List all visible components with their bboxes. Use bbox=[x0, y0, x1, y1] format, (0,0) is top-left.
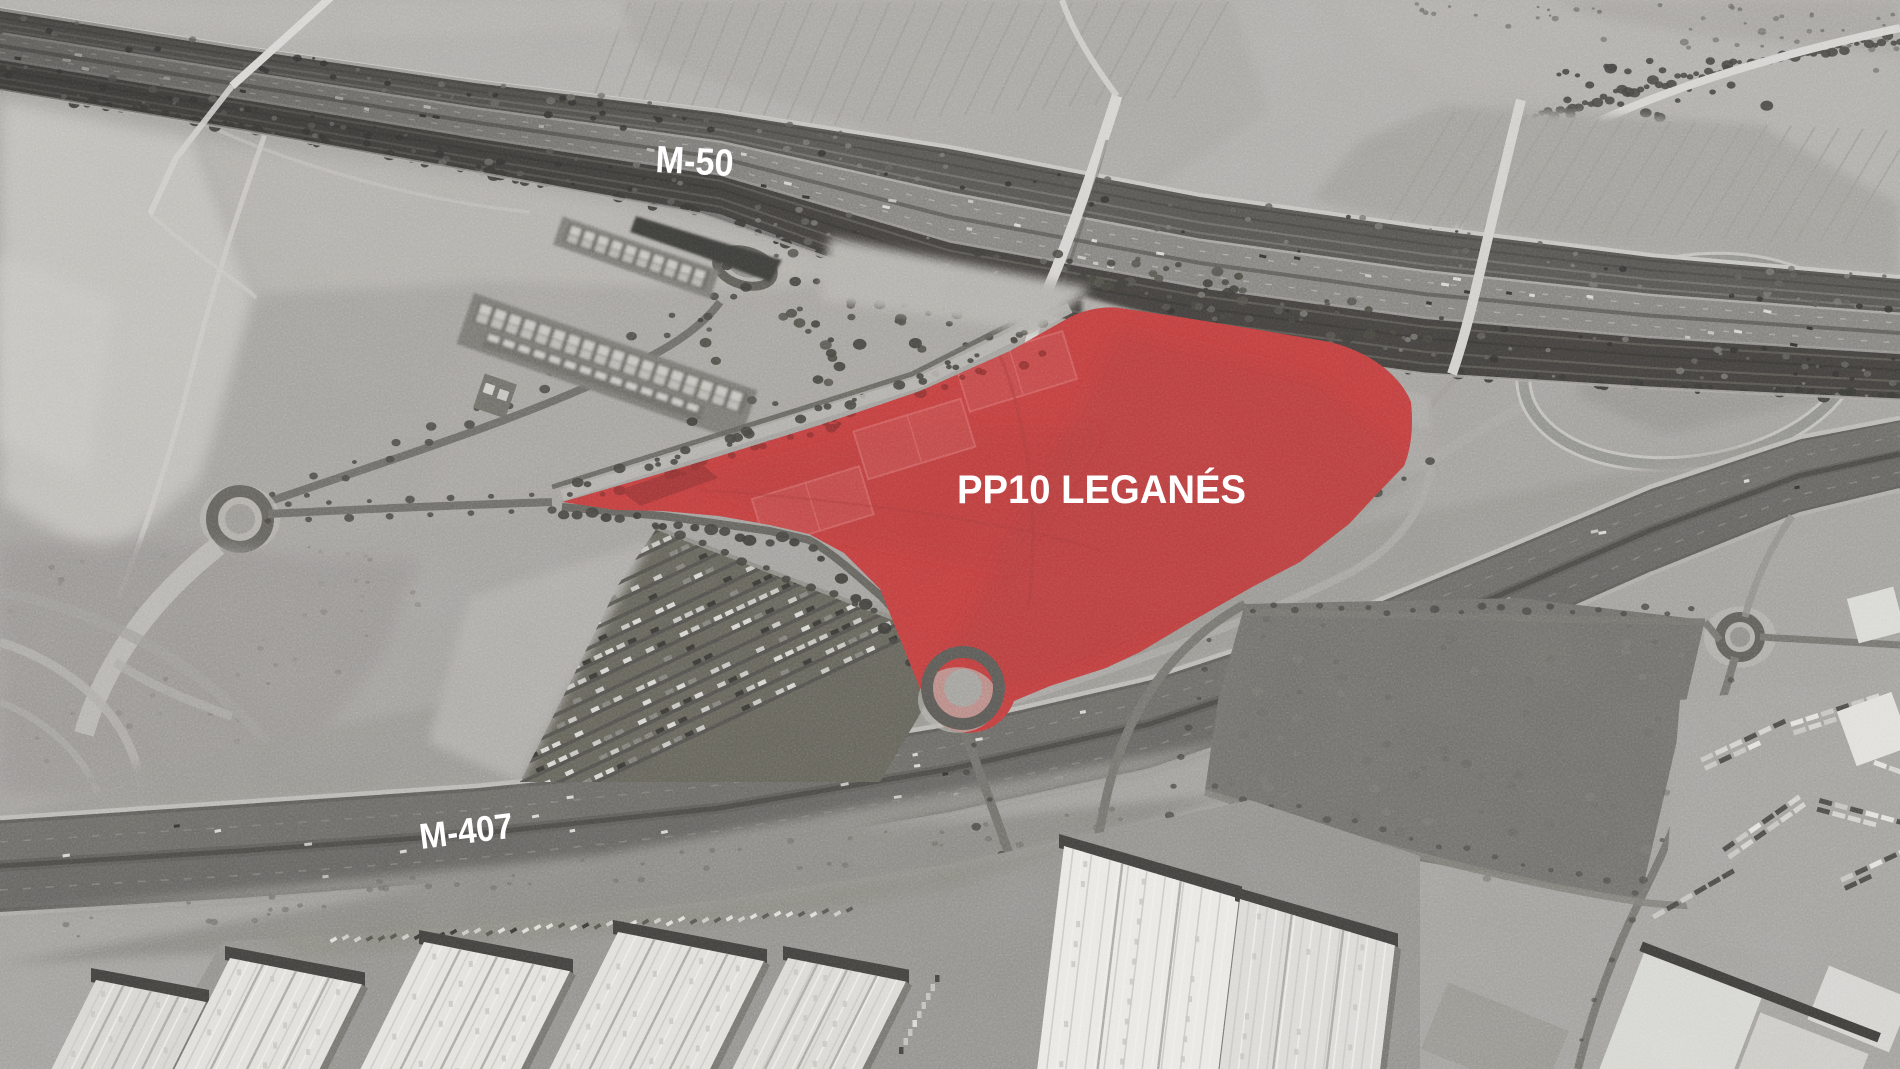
svg-text:PP10 LEGANÉS: PP10 LEGANÉS bbox=[957, 467, 1246, 512]
svg-text:M-50: M-50 bbox=[655, 139, 735, 185]
